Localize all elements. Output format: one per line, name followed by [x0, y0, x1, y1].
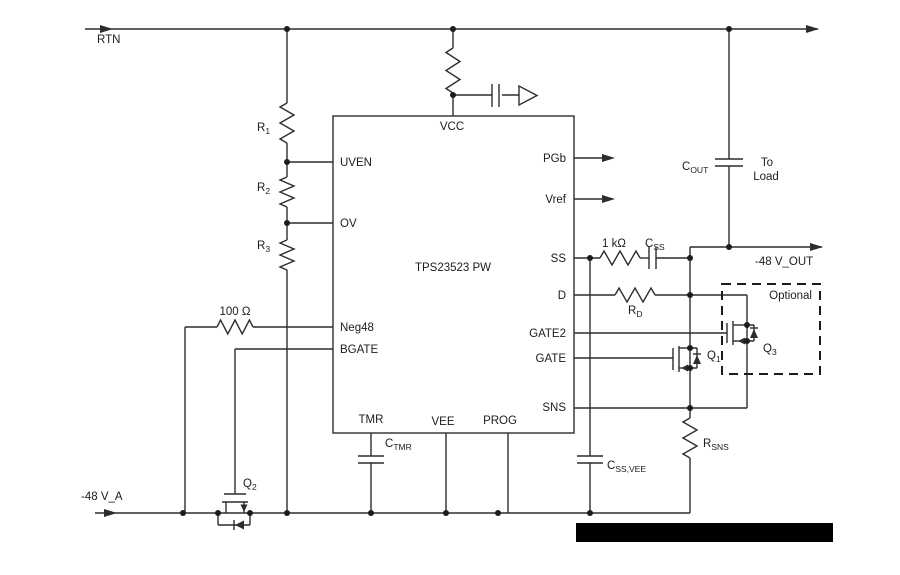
q2-label: Q2 — [243, 478, 257, 492]
pin-label-neg48: Neg48 — [340, 322, 374, 334]
resistor-rsns — [683, 418, 697, 458]
mosfet-arrow-icon — [681, 365, 688, 372]
pin-label-vee: VEE — [431, 416, 454, 428]
body-diode-icon — [750, 329, 758, 338]
q3-mosfet — [727, 295, 758, 408]
pin-label-ss: SS — [551, 253, 567, 265]
to-load-label-2: Load — [753, 171, 779, 183]
redaction-bar — [576, 523, 833, 542]
arrow-right-icon — [100, 25, 113, 33]
output-net-label: -48 V_OUT — [755, 256, 813, 268]
cssvee-capacitor — [577, 456, 603, 463]
resistor-r2 — [280, 177, 294, 207]
r1-label: R1 — [257, 122, 270, 136]
pin-label-d: D — [558, 290, 566, 302]
pin-label-vref: Vref — [545, 194, 566, 206]
mosfet-arrow-icon — [241, 505, 248, 513]
vcc-branch — [446, 29, 537, 116]
vcc-resistor — [446, 48, 460, 93]
resistor-r3 — [280, 240, 294, 270]
pin-label-pgb: PGb — [543, 153, 566, 165]
q2-mosfet — [218, 349, 333, 530]
resistor-1k — [600, 251, 640, 265]
input-net-label: -48 V_A — [81, 491, 123, 503]
arrow-right-icon — [602, 195, 615, 203]
arrow-right-icon — [806, 25, 819, 33]
mosfet-arrow-icon — [738, 338, 745, 345]
css-label: CSS — [645, 238, 665, 252]
r100-label: 100 Ω — [220, 306, 251, 318]
circuit-schematic: RTN -48 V_A -48 V_OUT To Load Optional R… — [0, 0, 900, 575]
cout-capacitor — [715, 159, 743, 166]
tmr-branch — [358, 433, 384, 513]
pin-label-ov: OV — [340, 218, 357, 230]
cssvee-branch — [577, 258, 603, 513]
pin-label-sns: SNS — [542, 402, 566, 414]
body-diode-icon — [235, 521, 244, 530]
to-load-label-1: To — [761, 157, 773, 169]
rd-label: RD — [628, 305, 642, 319]
ctmr-capacitor — [358, 456, 384, 463]
pin-label-tmr: TMR — [359, 414, 384, 426]
resistor-r1 — [280, 103, 294, 143]
arrow-right-icon — [810, 243, 823, 251]
vref-output — [574, 195, 615, 203]
drain-spine — [683, 247, 697, 513]
q3-label: Q3 — [763, 343, 777, 357]
rtn-label: RTN — [97, 34, 120, 46]
arrow-right-icon — [602, 154, 615, 162]
pin-label-gate: GATE — [536, 353, 567, 365]
output-rail — [690, 243, 823, 251]
pin-label-prog: PROG — [483, 415, 517, 427]
pin-label-bgate: BGATE — [340, 344, 378, 356]
buffer-triangle-icon — [519, 86, 537, 105]
optional-label: Optional — [769, 290, 812, 302]
q1-label: Q1 — [707, 350, 721, 364]
vcc-capacitor — [492, 84, 499, 107]
ctmr-label: CTMR — [385, 438, 412, 452]
body-diode-icon — [693, 355, 701, 364]
pin-label-vcc: VCC — [440, 121, 464, 133]
cssvee-label: CSS,VEE — [607, 460, 646, 474]
ic-part-number: TPS23523 PW — [415, 262, 491, 274]
cout-branch — [715, 29, 743, 247]
pgb-output — [574, 154, 615, 162]
resistor-rd — [615, 288, 655, 302]
resistor-100ohm — [217, 320, 253, 334]
r2-label: R2 — [257, 182, 270, 196]
q1-mosfet — [673, 346, 701, 372]
pin-label-uven: UVEN — [340, 157, 372, 169]
pin-label-gate2: GATE2 — [529, 328, 566, 340]
schematic-page: RTN -48 V_A -48 V_OUT To Load Optional R… — [0, 0, 900, 575]
arrow-right-icon — [104, 509, 117, 517]
r1k-label: 1 kΩ — [602, 238, 626, 250]
uv-ov-resistor-divider — [280, 29, 333, 513]
r3-label: R3 — [257, 240, 270, 254]
cout-label: COUT — [682, 161, 708, 175]
rsns-label: RSNS — [703, 438, 729, 452]
